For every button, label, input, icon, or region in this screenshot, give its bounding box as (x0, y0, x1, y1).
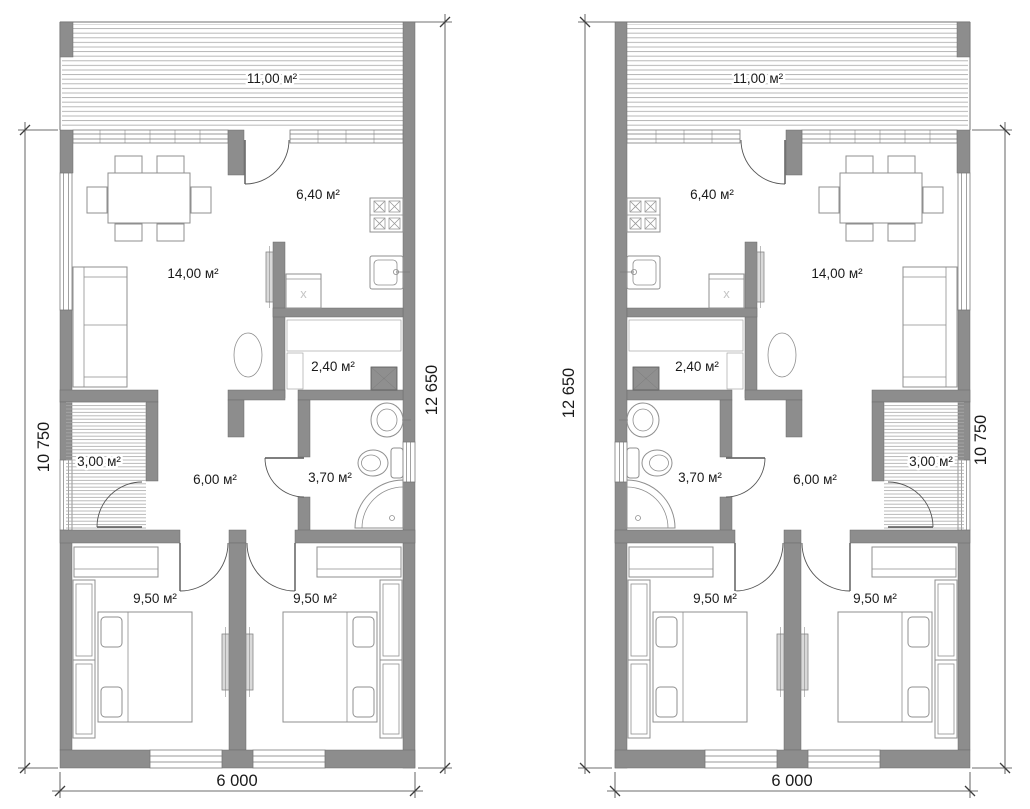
room-label-hall: 6,00 м² (793, 472, 837, 487)
room-label-porch: 3,00 м² (77, 454, 121, 469)
dimension-right: 12 650 (423, 365, 441, 415)
floor-plan-image: х (0, 0, 1030, 809)
floor-plan-canvas: х (0, 0, 1030, 809)
room-label-terrace: 11,00 м² (733, 71, 784, 86)
room-label-hall: 6,00 м² (193, 472, 237, 487)
room-label-bath: 3,70 м² (678, 470, 722, 485)
dimension-left: 10 750 (35, 422, 53, 472)
dimension-right: 10 750 (972, 415, 990, 465)
room-label-sauna: 2,40 м² (311, 359, 355, 374)
room-label-bath: 3,70 м² (308, 470, 352, 485)
room-label-kitchen: 6,40 м² (296, 187, 340, 202)
room-label-kitchen: 6,40 м² (690, 187, 734, 202)
floor-plan-right-mirrored (578, 14, 1012, 798)
dimension-left: 12 650 (560, 368, 578, 418)
dimension-bottom: 6 000 (771, 772, 812, 790)
room-label-bedroom1: 9,50 м² (853, 591, 897, 606)
room-label-bedroom2: 9,50 м² (693, 591, 737, 606)
room-label-bedroom1: 9,50 м² (133, 591, 177, 606)
room-label-living: 14,00 м² (811, 266, 863, 281)
room-label-sauna: 2,40 м² (675, 359, 719, 374)
floor-plan-left (18, 14, 452, 798)
dimension-bottom: 6 000 (216, 772, 257, 790)
room-label-bedroom2: 9,50 м² (293, 591, 337, 606)
room-label-terrace: 11,00 м² (247, 71, 298, 86)
room-label-living: 14,00 м² (167, 266, 219, 281)
room-label-porch: 3,00 м² (909, 454, 953, 469)
